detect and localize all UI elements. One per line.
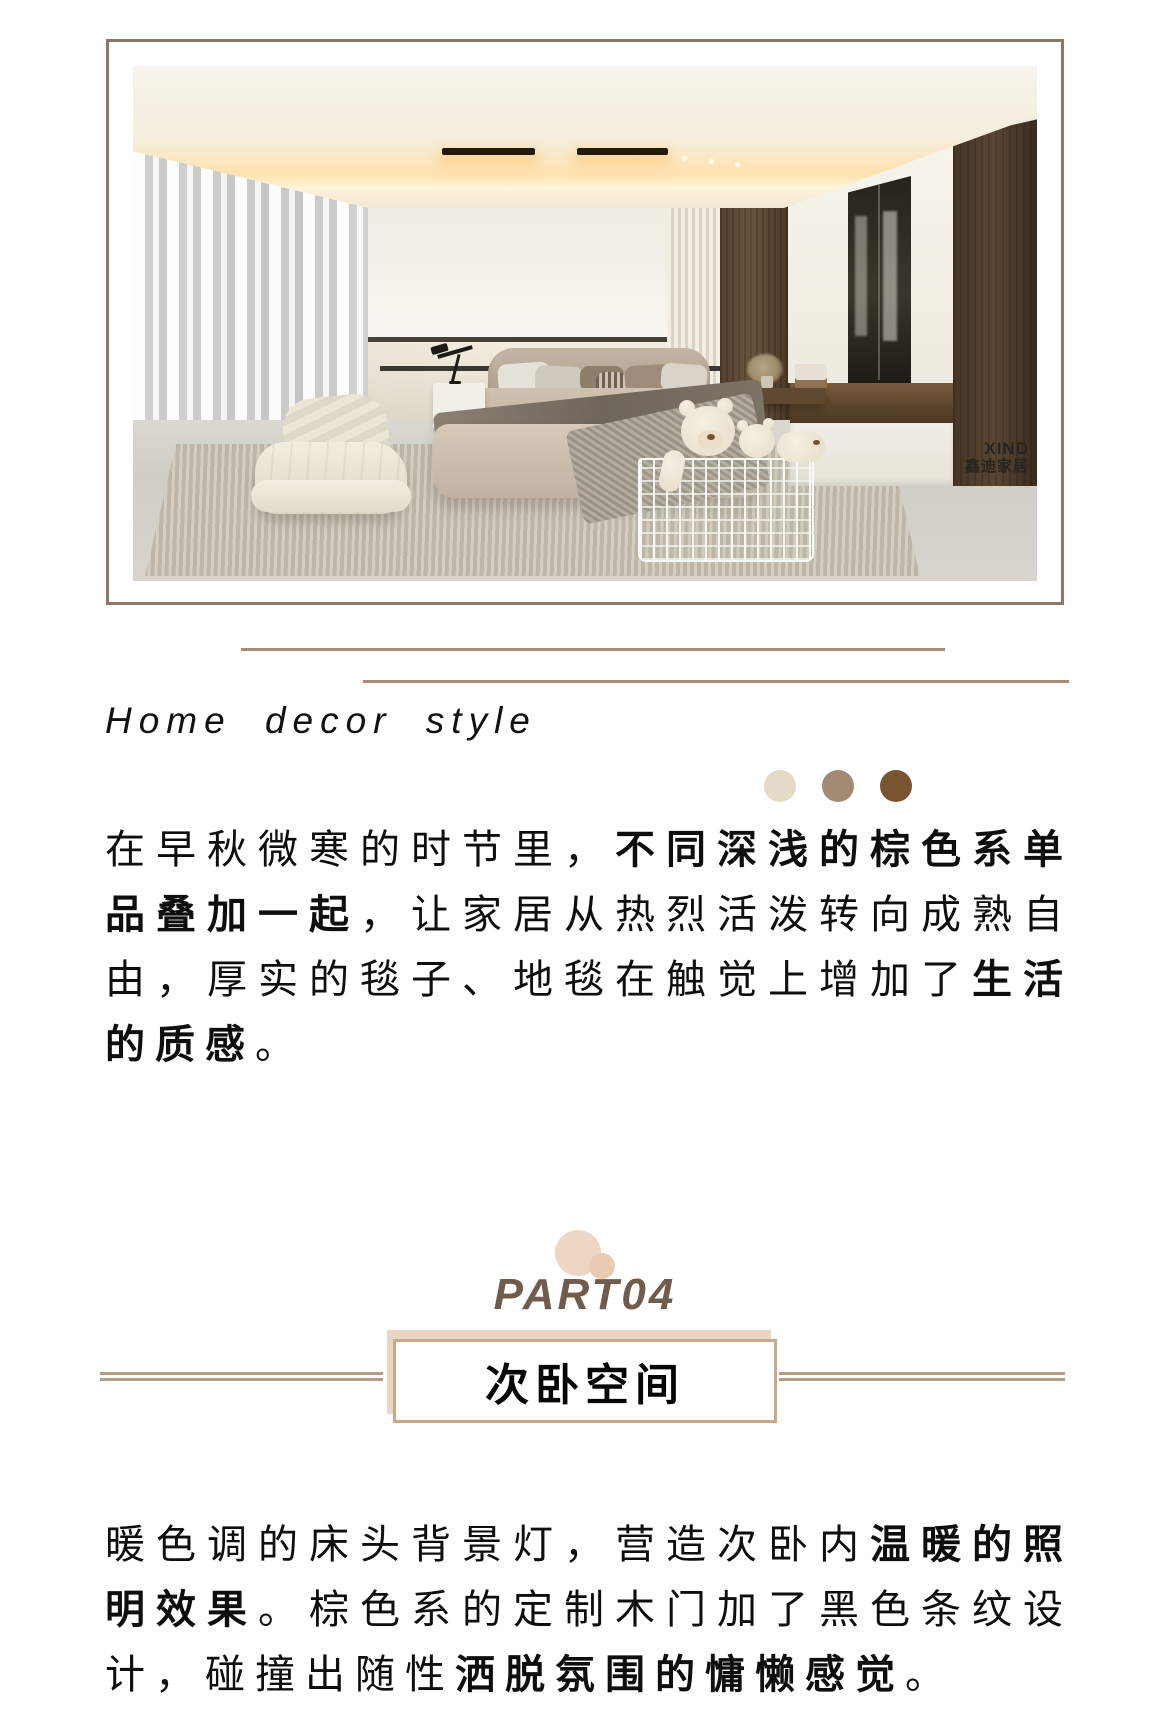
linear-ceiling-light: [442, 148, 535, 155]
section-title-box: 次卧空间: [393, 1339, 777, 1423]
article-page: XIND 鑫迪家居 Home decor style 在早秋微寒的时节里，不同深…: [0, 0, 1170, 1734]
body-paragraph: 暖色调的床头背景灯，营造次卧内温暖的照明效果。棕色系的定制木门加了黑色条纹设计，…: [105, 1513, 1073, 1708]
intro-paragraph: 在早秋微寒的时节里，不同深浅的棕色系单品叠加一起，让家居从热烈活泼转向成熟自由，…: [105, 818, 1073, 1078]
linear-ceiling-light: [577, 148, 668, 155]
part-label: PART04: [0, 1270, 1170, 1320]
hanging-clothes: [883, 211, 897, 341]
glass-door-divider: [878, 184, 880, 380]
section-subtitle: Home decor style: [105, 700, 537, 742]
brand-logo: XIND: [965, 440, 1029, 459]
rule-left-bottom: [100, 1378, 383, 1381]
rule-right-bottom: [779, 1378, 1065, 1381]
table-lamp-base: [449, 381, 461, 384]
divider-line-upper: [241, 648, 945, 651]
downlight: [682, 156, 687, 161]
teddy-bear-nose: [707, 434, 715, 440]
teddy-bear-lying: [777, 432, 825, 462]
palette-dot-medium: [822, 770, 854, 802]
downlight: [735, 162, 740, 167]
brand-name: 鑫迪家居: [965, 459, 1029, 476]
rule-right-top: [779, 1372, 1065, 1375]
palette-dot-light: [764, 770, 796, 802]
palette-dots: [764, 770, 912, 802]
palette-dot-dark: [880, 770, 912, 802]
decor-box: [795, 364, 827, 388]
divider-line-lower: [363, 680, 1069, 683]
teddy-bear-muzzle: [697, 430, 723, 450]
wall-rail: [380, 366, 492, 371]
dark-wood-panel: [953, 108, 1037, 486]
rule-left-top: [100, 1372, 383, 1375]
downlight: [709, 159, 714, 164]
vase: [761, 376, 773, 388]
brand-watermark: XIND 鑫迪家居: [965, 440, 1029, 475]
teddy-bear-head-small: [739, 424, 775, 458]
bedroom-photo[interactable]: XIND 鑫迪家居: [133, 66, 1037, 581]
section-title-text: 次卧空间: [485, 1349, 685, 1413]
hanging-clothes: [855, 216, 867, 336]
lounge-chair-front-roll: [251, 480, 411, 512]
teddy-bear-nose: [813, 440, 820, 445]
